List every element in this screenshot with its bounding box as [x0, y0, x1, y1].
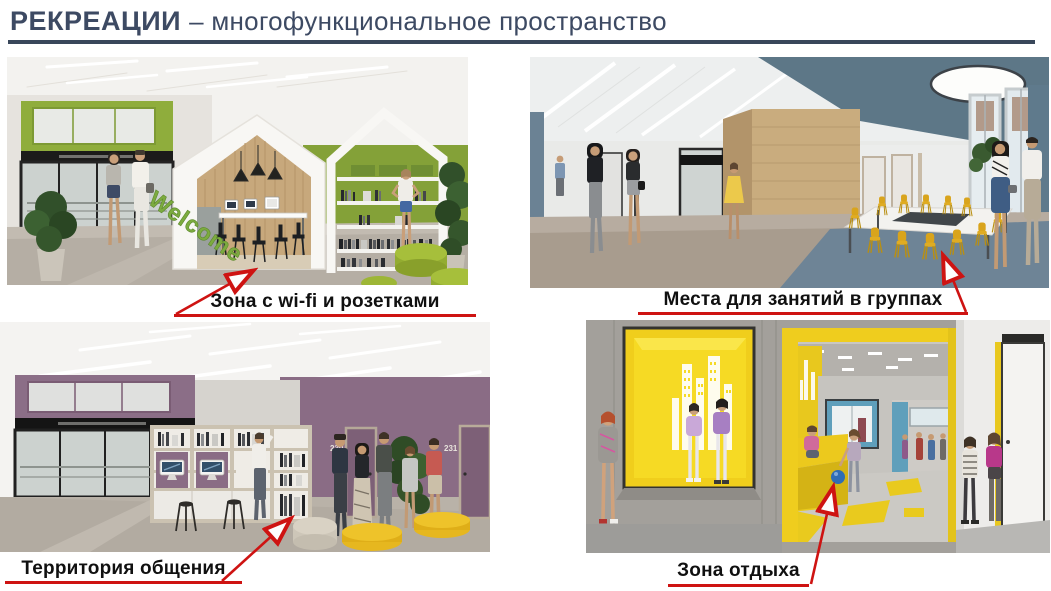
door-number-231: 231 [444, 444, 458, 453]
yellow-platform [798, 426, 848, 511]
green-cabinets [351, 165, 433, 176]
right-wall-door [956, 320, 1050, 553]
title-underline [8, 40, 1035, 44]
page-title-bold: РЕКРЕАЦИИ [10, 6, 181, 36]
yellow-portal [782, 328, 956, 542]
wifi-zone-photo: Welcome [7, 57, 468, 285]
page-title-rest: – многофункциональное пространство [189, 6, 667, 36]
caption-underline-rest [668, 584, 809, 587]
shelving-unit [150, 425, 312, 531]
caption-underline-communication [5, 581, 242, 584]
communication-territory-photo: 230 231 [0, 322, 490, 552]
caption-wifi-zone: Зона с wi-fi и розетками [174, 291, 476, 313]
page-title: РЕКРЕАЦИИ– многофункциональное пространс… [10, 6, 667, 37]
group-study-photo [530, 57, 1049, 288]
blue-ball [831, 470, 845, 484]
presentation-slide: РЕКРЕАЦИИ– многофункциональное пространс… [0, 0, 1051, 591]
caption-underline-groups [638, 312, 968, 315]
caption-communication: Территория общения [5, 558, 242, 580]
rest-zone-photo [586, 320, 1050, 553]
caption-group-study: Места для занятий в группах [638, 289, 968, 311]
caption-rest-zone: Зона отдыха [668, 560, 809, 582]
caption-underline-wifi [174, 314, 476, 317]
yellow-niche-window [616, 328, 761, 500]
